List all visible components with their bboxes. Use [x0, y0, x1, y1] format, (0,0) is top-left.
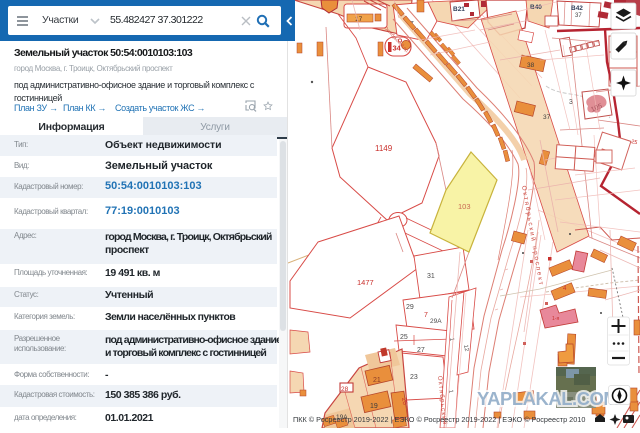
svg-text:29А: 29А — [430, 318, 442, 325]
svg-text:YAPLAKAL.COM: YAPLAKAL.COM — [477, 388, 618, 409]
svg-text:38: 38 — [527, 62, 535, 69]
svg-text:31: 31 — [427, 273, 435, 280]
svg-text:103: 103 — [458, 202, 471, 211]
svg-text:29: 29 — [406, 304, 414, 311]
svg-text:37: 37 — [575, 13, 582, 19]
svg-text:В40: В40 — [530, 4, 542, 11]
svg-text:В21: В21 — [453, 6, 465, 13]
svg-text:7: 7 — [424, 312, 428, 319]
svg-text:ПКК © Росреестр 2019-2022 | ЕЭ: ПКК © Росреестр 2019-2022 | ЕЭКО © Росре… — [293, 415, 585, 424]
svg-text:1149: 1149 — [375, 144, 393, 153]
svg-text:37: 37 — [543, 114, 551, 121]
svg-text:25: 25 — [400, 334, 408, 341]
svg-text:1-я: 1-я — [552, 316, 559, 322]
svg-text:28: 28 — [341, 386, 349, 393]
svg-text:19: 19 — [370, 403, 378, 410]
svg-text:21: 21 — [373, 377, 381, 384]
svg-text:25: 25 — [631, 139, 638, 146]
svg-text:В42: В42 — [571, 5, 583, 12]
svg-text:27: 27 — [417, 347, 425, 354]
svg-text:1477: 1477 — [357, 278, 374, 287]
svg-text:23: 23 — [410, 374, 418, 381]
